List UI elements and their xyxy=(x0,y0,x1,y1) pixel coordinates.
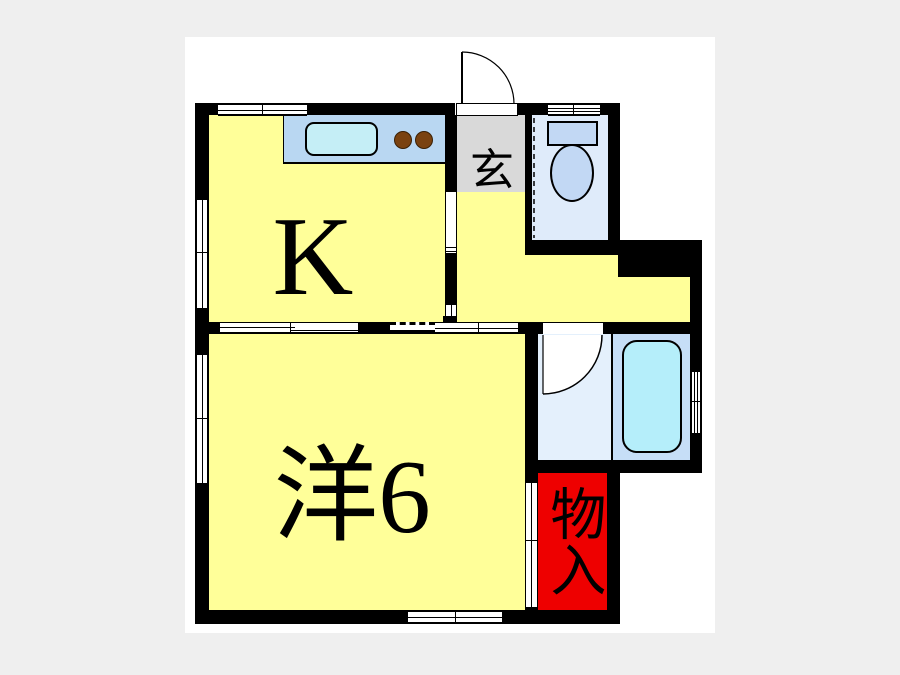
window-bottom-western xyxy=(408,610,502,624)
kitchen-label: K xyxy=(243,197,383,317)
wall-segment xyxy=(603,322,690,334)
hallway-area xyxy=(525,255,618,322)
bathtub xyxy=(622,340,682,453)
wall-segment xyxy=(195,103,209,200)
closet-door xyxy=(525,483,538,607)
wall-segment xyxy=(445,253,457,305)
closet-label: 物入 xyxy=(538,472,607,610)
hallway-area xyxy=(618,277,690,322)
opening-dashed xyxy=(390,322,435,334)
window-top-toilet xyxy=(548,103,600,116)
wall-segment xyxy=(518,103,548,115)
toilet-tank xyxy=(547,121,598,146)
wall-segment xyxy=(358,322,390,334)
wall-segment xyxy=(445,115,457,192)
kitchen-sink xyxy=(305,122,378,156)
wall-segment xyxy=(525,607,538,624)
genkan-label: 玄 xyxy=(462,140,522,192)
wall-segment xyxy=(209,322,220,334)
closet-label-text: 物入 xyxy=(543,485,602,597)
floorplan-page: K 玄 洋6 物入 xyxy=(0,0,900,675)
wall-segment xyxy=(618,240,702,277)
wall-segment xyxy=(525,240,618,255)
window-top-kitchen xyxy=(218,103,307,116)
entrance-threshold xyxy=(456,103,518,116)
kitchen-label-text: K xyxy=(273,193,354,322)
stove-burner-icon xyxy=(415,131,433,149)
window-bath-right xyxy=(690,372,702,433)
opening-hall-strip xyxy=(445,305,457,316)
wall-segment xyxy=(502,610,620,624)
slider-hall-western xyxy=(435,322,518,334)
western-room-label: 洋6 xyxy=(202,417,502,557)
wall-segment xyxy=(196,610,408,624)
washroom-doorway xyxy=(543,322,603,334)
wall-segment xyxy=(195,308,209,355)
toilet-bowl xyxy=(550,144,594,202)
stove-burner-icon xyxy=(394,131,412,149)
wall-segment xyxy=(307,103,455,115)
wall-segment xyxy=(525,322,538,483)
washroom-area xyxy=(538,334,611,460)
wall-segment xyxy=(525,115,532,240)
wall-segment xyxy=(607,472,620,624)
door-kitchen-hall xyxy=(445,192,457,253)
wall-segment xyxy=(608,103,620,240)
hallway-area xyxy=(457,192,525,322)
western-room-label-text: 洋6 xyxy=(273,411,431,563)
genkan-label-text: 玄 xyxy=(470,134,514,198)
slider-kitchen-western xyxy=(220,322,358,334)
window-left-kitchen xyxy=(195,200,209,308)
bath-divider xyxy=(611,334,613,460)
